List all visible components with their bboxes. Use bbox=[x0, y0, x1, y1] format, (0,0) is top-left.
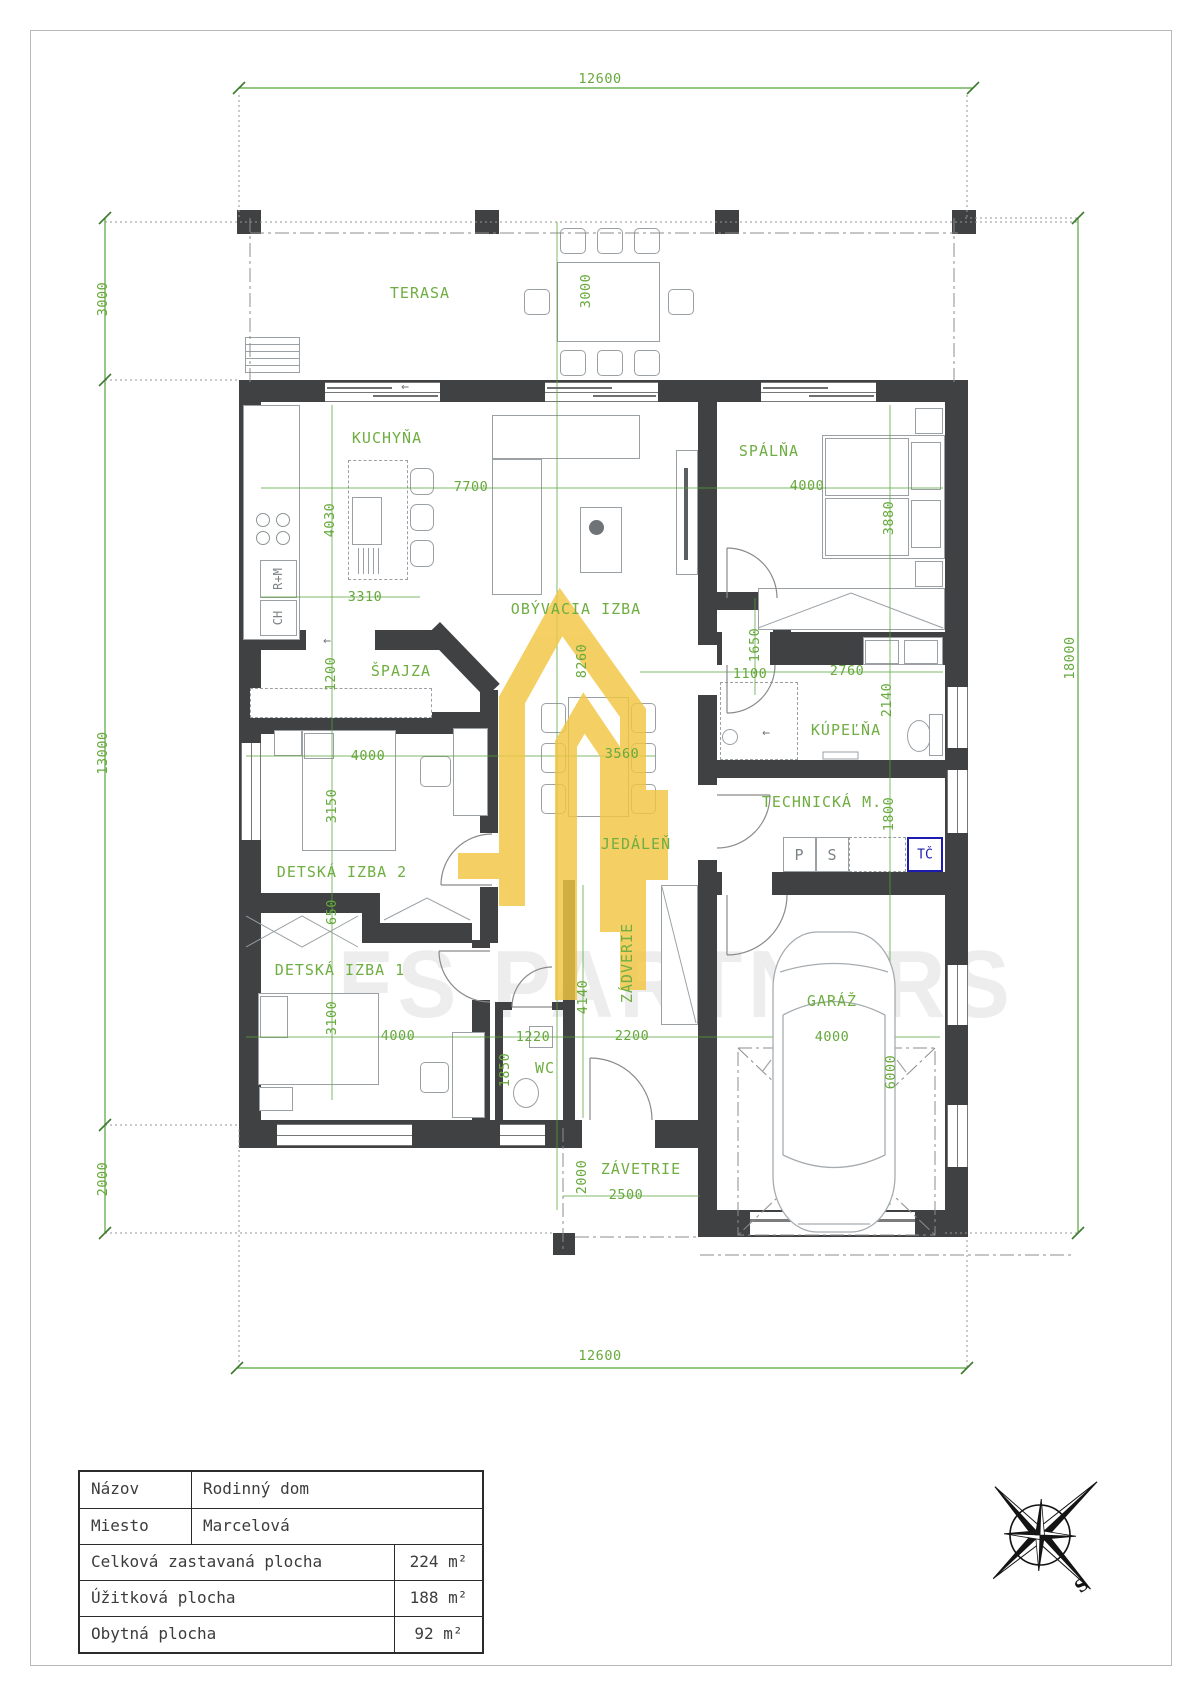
dimension-label: 2140 bbox=[879, 683, 895, 718]
title-value: Marcelová bbox=[192, 1509, 482, 1544]
room-label-wc: WC bbox=[535, 1059, 555, 1077]
dimension-label: 7700 bbox=[454, 479, 489, 495]
dimension-label: 1800 bbox=[881, 797, 897, 832]
dimension-label: 2500 bbox=[609, 1187, 644, 1203]
dimension-label: 6000 bbox=[883, 1055, 899, 1090]
dimension-label: 650 bbox=[324, 899, 340, 925]
room-label-zavetrie: ZÁVETRIE bbox=[601, 1160, 681, 1178]
room-label-detska-izba-1: DETSKÁ IZBA 1 bbox=[275, 961, 405, 979]
dimension-label: 18000 bbox=[1062, 636, 1078, 679]
dimension-label: 3150 bbox=[324, 789, 340, 824]
dimension-label: 12600 bbox=[578, 1348, 621, 1364]
freezer-label: CH bbox=[271, 611, 285, 625]
title-value: 188 m² bbox=[395, 1581, 482, 1616]
room-label-kuchyna: KUCHYŇA bbox=[352, 429, 422, 447]
room-label-terasa: TERASA bbox=[390, 284, 450, 302]
dimension-label: 2760 bbox=[830, 663, 865, 679]
dimension-label: 1100 bbox=[733, 666, 768, 682]
title-label: Miesto bbox=[80, 1509, 192, 1544]
title-block: Názov Rodinný dom Miesto Marcelová Celko… bbox=[78, 1470, 484, 1654]
title-label: Názov bbox=[80, 1472, 192, 1508]
heat-pump-label: TČ bbox=[917, 848, 933, 863]
dimension-label: 4030 bbox=[322, 503, 338, 538]
dimension-label: 3880 bbox=[881, 501, 897, 536]
dimension-label: 12600 bbox=[578, 71, 621, 87]
title-row: Obytná plocha 92 m² bbox=[80, 1616, 482, 1652]
title-value: Rodinný dom bbox=[192, 1472, 482, 1508]
axis-lines bbox=[250, 218, 1075, 1255]
compass-rose bbox=[955, 1450, 1125, 1620]
dimension-label: 8260 bbox=[574, 644, 590, 679]
slider-arrow-icon: ← bbox=[401, 380, 409, 395]
fridge-label: R+M bbox=[271, 568, 285, 590]
dimension-label: 4000 bbox=[790, 478, 825, 494]
title-row: Úžitková plocha 188 m² bbox=[80, 1580, 482, 1616]
room-label-zadverie: ZÁDVERIE bbox=[618, 923, 636, 1003]
title-row: Miesto Marcelová bbox=[80, 1508, 482, 1544]
title-label: Obytná plocha bbox=[80, 1617, 395, 1652]
dimension-label: 3560 bbox=[605, 746, 640, 762]
dimension-label: 3000 bbox=[95, 282, 111, 317]
dimension-label: 1200 bbox=[323, 657, 339, 692]
dimension-label: 2200 bbox=[615, 1028, 650, 1044]
dimension-label: 4140 bbox=[575, 980, 591, 1015]
title-row: Názov Rodinný dom bbox=[80, 1472, 482, 1508]
room-label-obyvacia-izba: OBÝVACIA IZBA bbox=[511, 600, 641, 618]
room-label-detska-izba-2: DETSKÁ IZBA 2 bbox=[277, 863, 407, 881]
dimension-label: 1650 bbox=[747, 628, 763, 663]
dimension-label: 3100 bbox=[324, 1001, 340, 1036]
washer-label: P bbox=[794, 846, 803, 864]
title-label: Úžitková plocha bbox=[80, 1581, 395, 1616]
dimension-label: 1850 bbox=[497, 1053, 513, 1088]
room-label-kupelna: KÚPEĽŇA bbox=[811, 721, 881, 739]
dimension-label: 3310 bbox=[348, 589, 383, 605]
room-label-jedalen: JEDÁLEŇ bbox=[601, 835, 671, 853]
dimension-label: 4000 bbox=[815, 1029, 850, 1045]
bath-bench bbox=[823, 752, 858, 759]
title-label: Celková zastavaná plocha bbox=[80, 1545, 395, 1580]
shower-arrow-icon: ← bbox=[762, 726, 770, 741]
title-value: 224 m² bbox=[395, 1545, 482, 1580]
drawing-sheet: FS PARTNERS bbox=[0, 0, 1202, 1696]
room-label-spalna: SPÁLŇA bbox=[739, 442, 799, 460]
dimension-label: 3000 bbox=[578, 274, 594, 309]
dimension-label: 2000 bbox=[95, 1162, 111, 1197]
dryer-label: S bbox=[827, 846, 836, 864]
pantry-arrow-icon: ← bbox=[323, 634, 331, 649]
room-label-technicka-m: TECHNICKÁ M. bbox=[762, 793, 882, 811]
title-value: 92 m² bbox=[395, 1617, 482, 1652]
room-label-spajza: ŠPAJZA bbox=[371, 662, 431, 680]
dimension-label: 13000 bbox=[95, 731, 111, 774]
dimension-label: 4000 bbox=[351, 748, 386, 764]
title-row: Celková zastavaná plocha 224 m² bbox=[80, 1544, 482, 1580]
dimension-label: 1220 bbox=[516, 1029, 551, 1045]
dimension-label: 4000 bbox=[381, 1028, 416, 1044]
dimension-label: 2000 bbox=[574, 1160, 590, 1195]
room-label-garaz: GARÁŽ bbox=[807, 992, 857, 1010]
